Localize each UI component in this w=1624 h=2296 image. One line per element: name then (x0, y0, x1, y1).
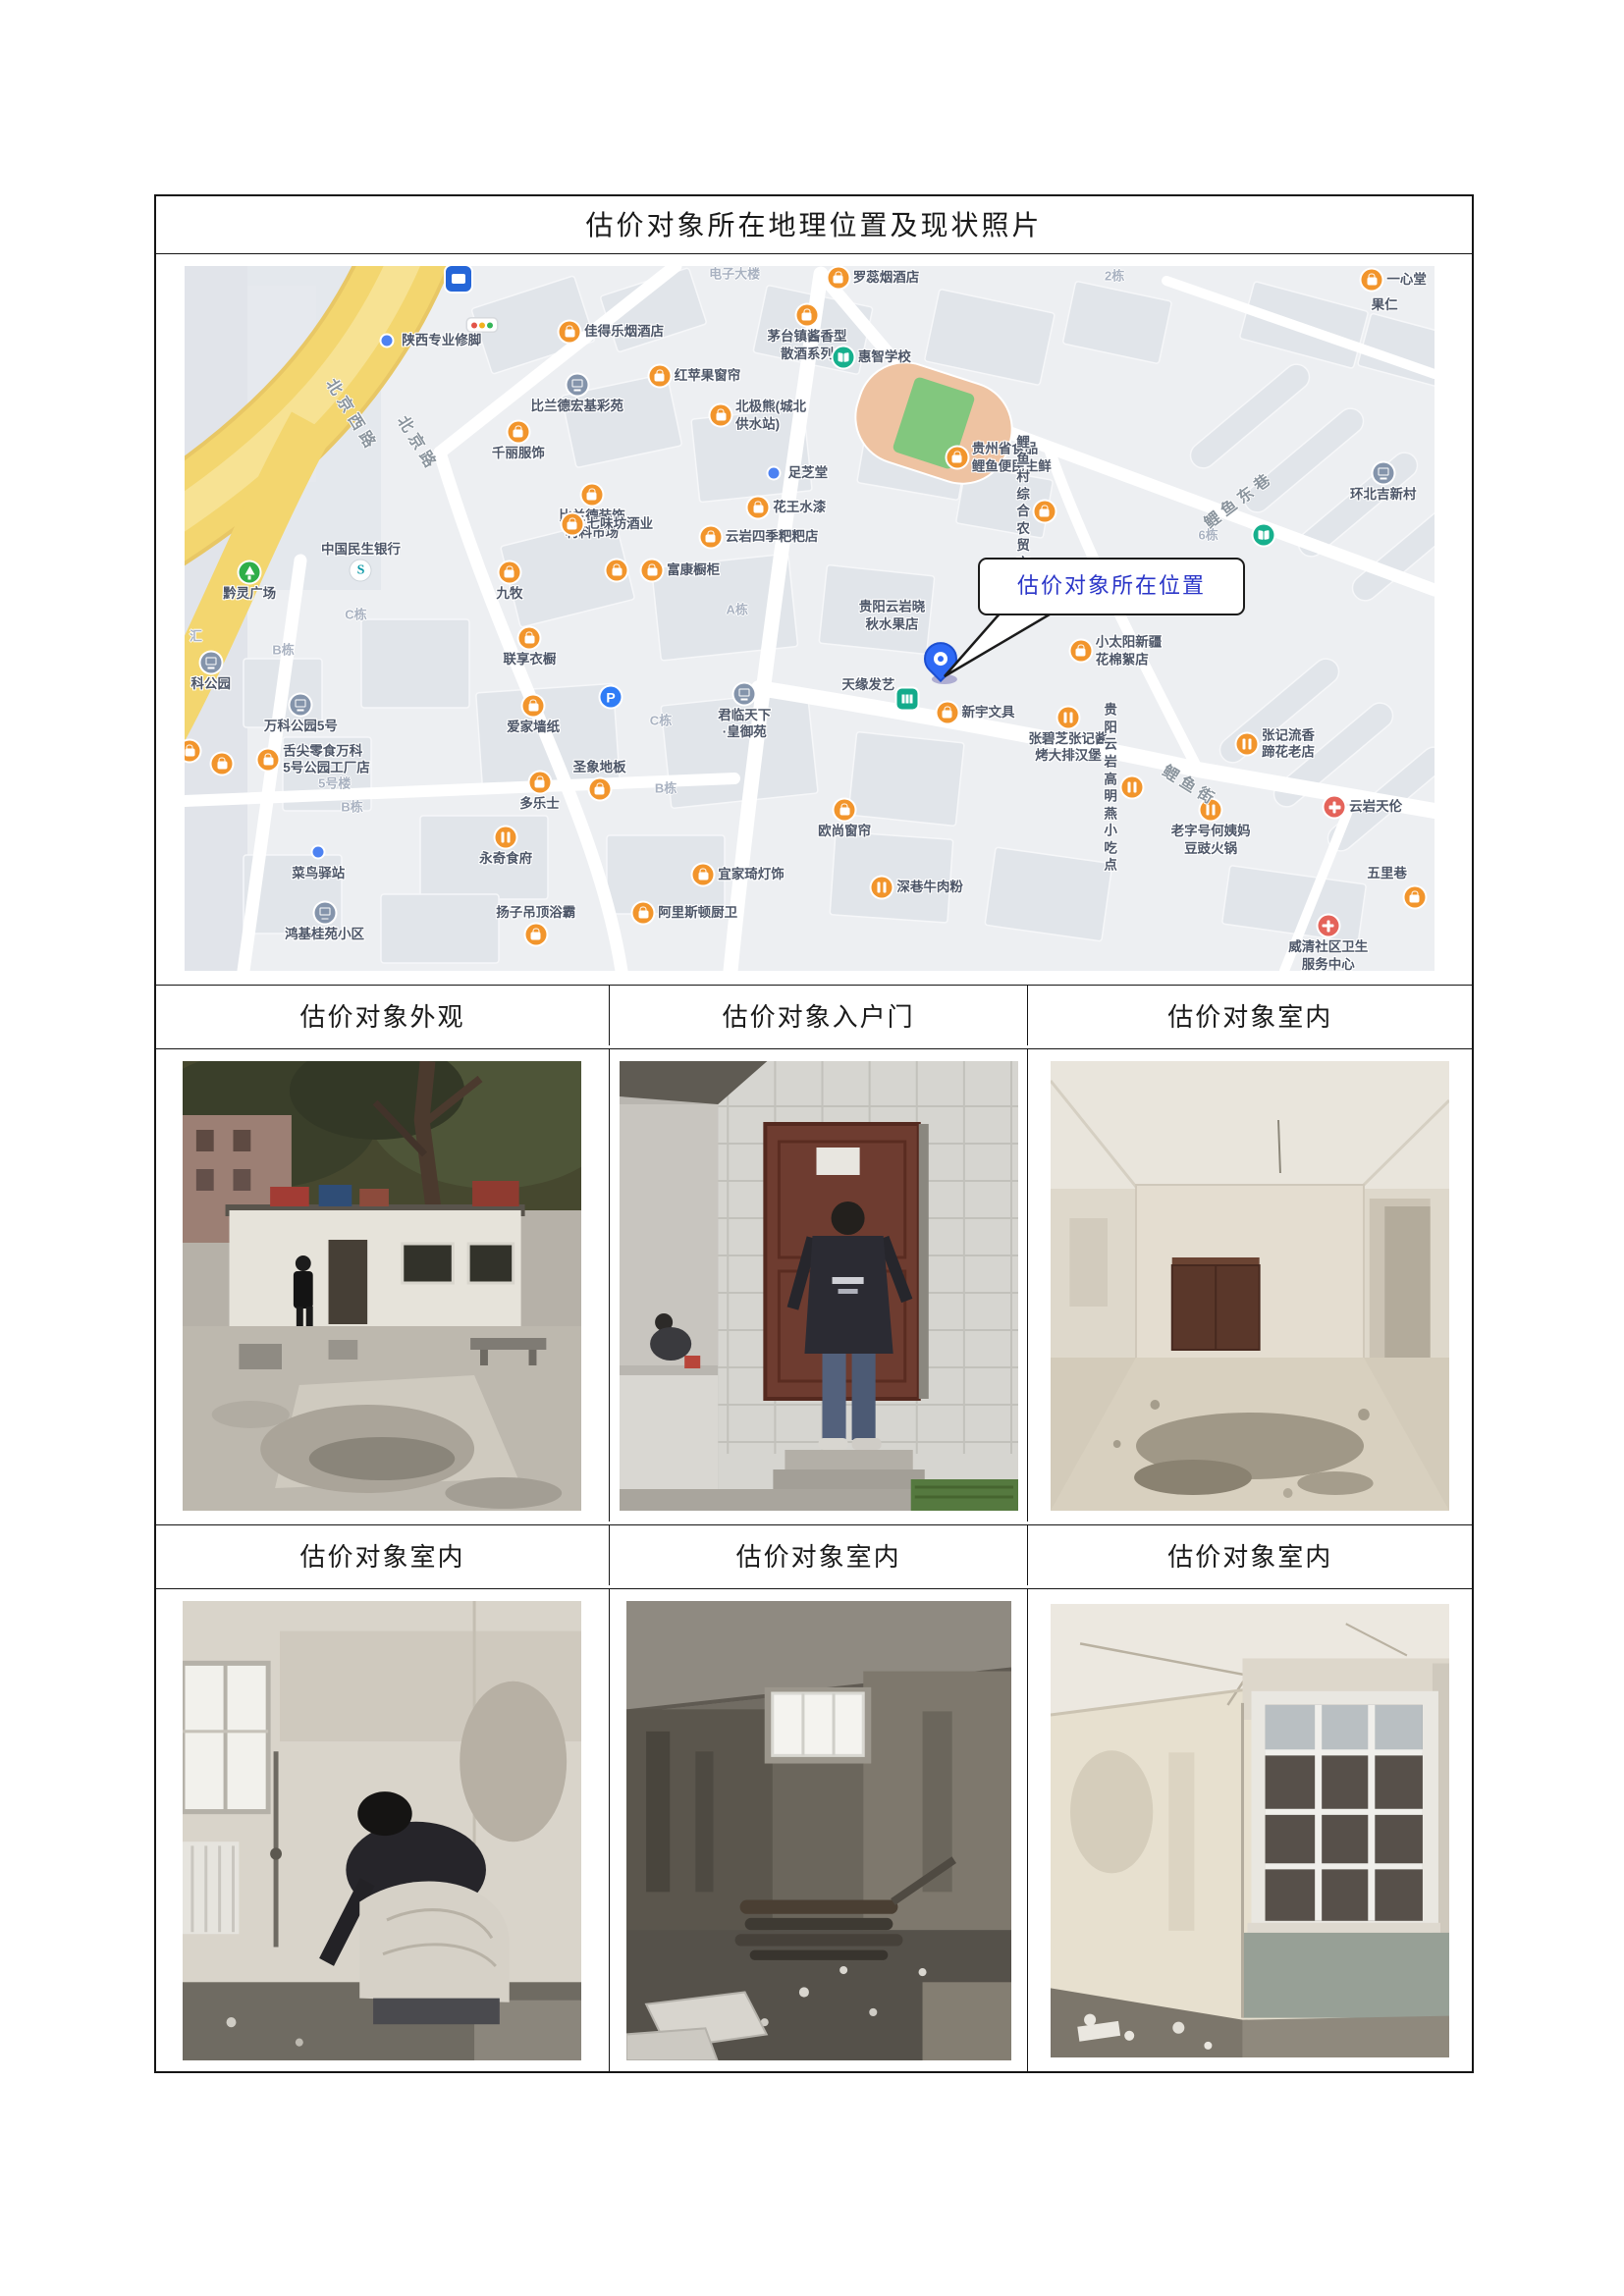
location-map: 陕西专业修脚罗蕊烟酒店一心堂果仁佳得乐烟酒店茅台镇酱香型 散酒系列红苹果窗帘惠智… (185, 266, 1435, 971)
caption-interior-3: 估价对象室内 (609, 1525, 1028, 1585)
photo-cell (1028, 1049, 1472, 1522)
caption-text: 估价对象室内 (299, 1537, 464, 1574)
table-title-row: 估价对象所在地理位置及现状照片 (156, 196, 1472, 250)
photo-interior-1 (1051, 1061, 1449, 1511)
photo-cell (609, 1049, 1028, 1522)
photo-cell (1028, 1589, 1472, 2071)
page-title: 估价对象所在地理位置及现状照片 (585, 204, 1042, 243)
callout-pointer (185, 266, 1435, 971)
caption-interior-1: 估价对象室内 (1028, 986, 1472, 1045)
caption-interior-2: 估价对象室内 (156, 1525, 609, 1585)
photo-interior-person (183, 1601, 581, 2060)
photo-exterior (183, 1061, 581, 1511)
caption-text: 估价对象室内 (1167, 1537, 1332, 1574)
caption-text: 估价对象室内 (736, 1537, 901, 1574)
photo-interior-window (1051, 1604, 1449, 2057)
photo-location-table: 估价对象所在地理位置及现状照片 (154, 194, 1474, 2073)
caption-exterior: 估价对象外观 (156, 986, 609, 1045)
caption-text: 估价对象入户门 (723, 997, 915, 1034)
photo-row-2 (156, 1588, 1472, 2071)
caption-text: 估价对象室内 (1167, 997, 1332, 1034)
photo-cell (156, 1049, 609, 1522)
caption-row-2: 估价对象室内 估价对象室内 估价对象室内 (156, 1524, 1472, 1585)
photo-interior-pipes (626, 1601, 1011, 2060)
appraisal-report-page: 估价对象所在地理位置及现状照片 (0, 0, 1624, 2296)
caption-row-1: 估价对象外观 估价对象入户门 估价对象室内 (156, 985, 1472, 1045)
callout-label: 估价对象所在位置 (1017, 575, 1206, 597)
photo-cell (609, 1589, 1028, 2071)
map-row: 陕西专业修脚罗蕊烟酒店一心堂果仁佳得乐烟酒店茅台镇酱香型 散酒系列红苹果窗帘惠智… (156, 253, 1472, 982)
photo-row-1 (156, 1048, 1472, 1522)
caption-entrance-door: 估价对象入户门 (609, 986, 1028, 1045)
map-callout: 估价对象所在位置 (978, 558, 1244, 615)
caption-text: 估价对象外观 (299, 997, 464, 1034)
caption-interior-4: 估价对象室内 (1028, 1525, 1472, 1585)
photo-entrance-door (620, 1061, 1018, 1511)
photo-cell (156, 1589, 609, 2071)
